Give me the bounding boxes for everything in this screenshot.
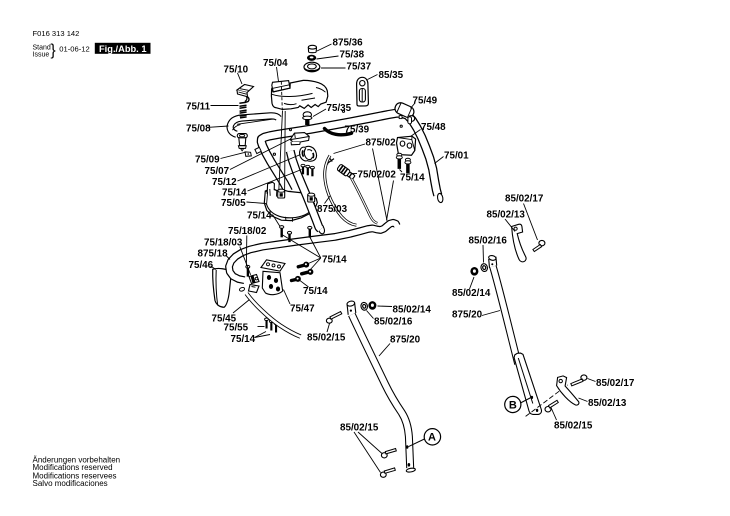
svg-text:F016 313 142: F016 313 142 — [33, 29, 80, 38]
svg-text:B: B — [509, 400, 517, 412]
svg-text:75/35: 75/35 — [327, 103, 352, 114]
svg-text:A: A — [428, 432, 436, 444]
svg-text:85/02/15: 85/02/15 — [307, 332, 346, 343]
svg-text:}: } — [51, 42, 56, 59]
svg-text:75/46: 75/46 — [189, 260, 214, 271]
svg-text:75/01: 75/01 — [444, 150, 469, 161]
svg-text:875/36: 875/36 — [333, 37, 364, 48]
svg-text:75/14: 75/14 — [303, 286, 328, 297]
svg-text:85/02/16: 85/02/16 — [469, 235, 508, 246]
svg-text:75/12: 75/12 — [212, 177, 237, 188]
svg-text:Stand: Stand — [33, 44, 51, 51]
svg-text:75/08: 75/08 — [186, 123, 211, 134]
svg-text:75/49: 75/49 — [413, 95, 438, 106]
svg-text:75/14: 75/14 — [322, 254, 347, 265]
svg-text:75/02/02: 75/02/02 — [358, 169, 397, 180]
svg-text:875/02: 875/02 — [366, 137, 397, 148]
svg-text:85/02/16: 85/02/16 — [374, 316, 413, 327]
svg-text:875/20: 875/20 — [452, 309, 483, 320]
svg-text:75/18/03: 75/18/03 — [204, 237, 243, 248]
svg-text:75/07: 75/07 — [205, 166, 230, 177]
svg-text:875/20: 875/20 — [390, 334, 421, 345]
svg-text:85/02/13: 85/02/13 — [588, 398, 627, 409]
svg-text:875/03: 875/03 — [317, 204, 348, 215]
svg-text:85/02/17: 85/02/17 — [596, 378, 635, 389]
svg-text:75/48: 75/48 — [421, 122, 446, 133]
svg-text:85/02/17: 85/02/17 — [505, 193, 544, 204]
svg-text:75/14: 75/14 — [400, 172, 425, 183]
svg-text:75/05: 75/05 — [221, 198, 246, 209]
svg-text:75/14: 75/14 — [247, 210, 272, 221]
svg-text:85/02/15: 85/02/15 — [554, 420, 593, 431]
svg-text:75/47: 75/47 — [290, 303, 315, 314]
svg-text:75/04: 75/04 — [263, 58, 288, 69]
svg-text:85/02/14: 85/02/14 — [393, 304, 432, 315]
svg-text:75/14: 75/14 — [222, 187, 247, 198]
svg-text:85/02/15: 85/02/15 — [340, 422, 379, 433]
svg-text:Fig./Abb. 1: Fig./Abb. 1 — [99, 44, 147, 54]
svg-text:85/35: 85/35 — [379, 70, 404, 81]
svg-text:75/18/02: 75/18/02 — [228, 226, 267, 237]
svg-text:75/39: 75/39 — [345, 124, 370, 135]
svg-text:85/02/14: 85/02/14 — [452, 288, 491, 299]
svg-text:75/55: 75/55 — [224, 322, 249, 333]
svg-text:Issue: Issue — [33, 51, 50, 58]
svg-text:875/18: 875/18 — [198, 248, 229, 259]
svg-text:75/37: 75/37 — [347, 61, 372, 72]
svg-text:85/02/13: 85/02/13 — [487, 209, 526, 220]
svg-text:75/14: 75/14 — [231, 334, 256, 345]
svg-text:75/38: 75/38 — [340, 49, 365, 60]
svg-text:01-06-12: 01-06-12 — [59, 44, 89, 53]
svg-text:75/11: 75/11 — [186, 101, 211, 112]
svg-text:Salvo modificaciones: Salvo modificaciones — [33, 479, 108, 488]
svg-text:75/10: 75/10 — [224, 64, 249, 75]
svg-text:75/09: 75/09 — [195, 154, 220, 165]
